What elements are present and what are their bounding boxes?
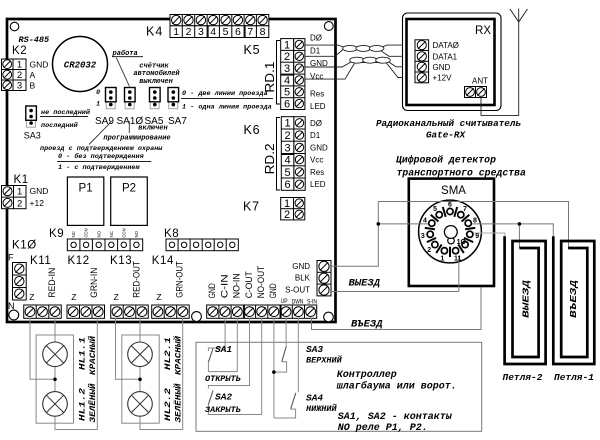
svg-text:K1Ø: K1Ø xyxy=(12,240,37,252)
svg-text:ЗЕЛЁНЫЙ: ЗЕЛЁНЫЙ xyxy=(174,383,184,423)
svg-text:A: A xyxy=(30,70,36,80)
svg-text:Z: Z xyxy=(114,292,119,302)
svg-text:GRN-IN: GRN-IN xyxy=(89,268,99,298)
svg-text:ЗАКРЫТЬ: ЗАКРЫТЬ xyxy=(204,405,241,415)
svg-text:K12: K12 xyxy=(68,255,90,267)
svg-text:GND: GND xyxy=(268,283,278,298)
svg-text:K14: K14 xyxy=(152,255,174,267)
svg-text:1: 1 xyxy=(284,198,290,210)
svg-text:Петля-2: Петля-2 xyxy=(503,372,543,383)
svg-text:проезд с подтверждением охраны: проезд с подтверждением охраны xyxy=(40,145,163,153)
svg-text:не последний: не последний xyxy=(41,108,90,117)
svg-text:K4: K4 xyxy=(146,25,163,39)
svg-text:CR2032: CR2032 xyxy=(64,60,97,70)
svg-text:2: 2 xyxy=(284,51,290,63)
svg-text:КРАСНЫЙ: КРАСНЫЙ xyxy=(174,336,184,375)
svg-text:NO-OUT: NO-OUT xyxy=(256,265,266,298)
svg-text:DWN: DWN xyxy=(292,299,304,306)
svg-text:P1: P1 xyxy=(79,183,93,195)
svg-text:RD.2: RD.2 xyxy=(263,143,277,174)
svg-text:ВЫЕЗД: ВЫЕЗД xyxy=(349,277,381,289)
svg-text:Gate-RX: Gate-RX xyxy=(426,130,466,141)
svg-text:Z: Z xyxy=(29,292,34,302)
svg-text:6: 6 xyxy=(284,99,290,111)
svg-text:1: 1 xyxy=(284,118,290,130)
svg-text:D1: D1 xyxy=(310,47,321,56)
svg-text:HL1.1: HL1.1 xyxy=(79,337,88,370)
svg-text:Z: Z xyxy=(156,292,161,302)
svg-text:F: F xyxy=(8,253,14,263)
svg-text:2: 2 xyxy=(284,130,290,142)
svg-text:9: 9 xyxy=(475,233,479,240)
svg-text:SA9: SA9 xyxy=(95,116,114,127)
svg-text:S-OUT: S-OUT xyxy=(285,285,310,294)
svg-text:выключен: выключен xyxy=(139,78,173,86)
svg-text:Контроллер: Контроллер xyxy=(337,370,397,381)
svg-text:NO: NO xyxy=(96,231,102,238)
svg-text:GND: GND xyxy=(433,63,451,72)
svg-text:SA4: SA4 xyxy=(306,393,323,404)
svg-text:4: 4 xyxy=(423,218,427,225)
svg-text:RD.1: RD.1 xyxy=(263,62,277,93)
svg-text:1: 1 xyxy=(284,39,290,51)
svg-text:GND: GND xyxy=(310,143,328,152)
svg-text:HL2.2: HL2.2 xyxy=(164,388,173,421)
svg-text:6: 6 xyxy=(448,202,452,209)
svg-text:K11: K11 xyxy=(30,255,51,267)
svg-text:K6: K6 xyxy=(244,123,261,137)
svg-text:1: 1 xyxy=(17,187,22,198)
svg-text:K8: K8 xyxy=(164,228,179,240)
svg-text:КРАСНЫЙ: КРАСНЫЙ xyxy=(88,336,98,375)
svg-text:ANT: ANT xyxy=(472,77,488,86)
svg-text:GND: GND xyxy=(30,60,49,70)
svg-text:SA3: SA3 xyxy=(24,131,41,141)
svg-text:NO: NO xyxy=(134,231,140,238)
svg-text:0 - без подтверждения: 0 - без подтверждения xyxy=(58,152,144,161)
svg-text:НИЖНИЙ: НИЖНИЙ xyxy=(306,403,338,414)
svg-text:2: 2 xyxy=(427,247,431,254)
svg-text:HL2.1: HL2.1 xyxy=(164,337,173,370)
svg-text:K7: K7 xyxy=(243,200,260,214)
svg-text:транспортного средства: транспортного средства xyxy=(397,168,526,179)
svg-text:+12: +12 xyxy=(30,198,45,208)
svg-text:Vcc: Vcc xyxy=(310,156,323,165)
svg-text:UP: UP xyxy=(281,298,288,305)
svg-text:K2: K2 xyxy=(12,45,27,57)
svg-text:Res: Res xyxy=(310,168,324,177)
svg-text:3: 3 xyxy=(421,233,425,240)
svg-text:NO реле P1, P2.: NO реле P1, P2. xyxy=(338,423,428,434)
svg-text:Цифровой детектор: Цифровой детектор xyxy=(396,155,496,166)
svg-text:LED: LED xyxy=(310,102,326,111)
svg-text:LED: LED xyxy=(310,180,326,189)
svg-text:Петля-1: Петля-1 xyxy=(554,372,594,383)
svg-text:SA2: SA2 xyxy=(215,392,232,403)
svg-text:1: 1 xyxy=(173,26,179,38)
svg-text:5: 5 xyxy=(284,167,290,179)
svg-text:0: 0 xyxy=(96,89,100,96)
svg-text:SA1: SA1 xyxy=(215,344,232,355)
svg-text:последний: последний xyxy=(41,121,78,130)
svg-text:2: 2 xyxy=(284,209,290,221)
svg-text:1Ø: 1Ø xyxy=(457,239,467,246)
svg-text:HL1.2: HL1.2 xyxy=(79,388,88,421)
svg-text:3: 3 xyxy=(284,63,290,75)
svg-text:3: 3 xyxy=(198,26,204,38)
svg-text:GND: GND xyxy=(292,262,310,271)
svg-text:0 - две линии проезда: 0 - две линии проезда xyxy=(182,90,268,98)
svg-text:включен: включен xyxy=(138,125,168,133)
svg-text:Z: Z xyxy=(71,292,76,302)
svg-text:7: 7 xyxy=(463,206,467,213)
svg-text:C-IN: C-IN xyxy=(219,274,229,298)
svg-text:2: 2 xyxy=(17,198,22,209)
svg-text:S-IN: S-IN xyxy=(307,299,317,306)
svg-text:1 - с подтверждением: 1 - с подтверждением xyxy=(58,164,140,172)
svg-text:NC: NC xyxy=(71,231,77,238)
svg-text:K9: K9 xyxy=(49,228,64,240)
svg-text:B: B xyxy=(30,81,36,91)
svg-text:DATAØ: DATAØ xyxy=(433,41,459,50)
svg-text:4: 4 xyxy=(284,75,290,87)
svg-text:6: 6 xyxy=(235,26,241,38)
svg-text:1: 1 xyxy=(440,256,444,263)
svg-text:NC: NC xyxy=(109,231,115,238)
svg-text:GRN-OUT: GRN-OUT xyxy=(175,261,185,298)
svg-text:SA7: SA7 xyxy=(168,116,187,127)
svg-text:BLK: BLK xyxy=(295,274,311,283)
svg-text:COM: COM xyxy=(84,228,90,238)
svg-text:5: 5 xyxy=(433,206,437,213)
svg-text:ВЪЕЗД: ВЪЕЗД xyxy=(351,318,383,330)
svg-text:Vcc: Vcc xyxy=(310,72,323,81)
svg-text:ВЕРХНИЙ: ВЕРХНИЙ xyxy=(306,354,343,365)
svg-text:DØ: DØ xyxy=(310,34,322,43)
svg-text:ВЪЕЗД: ВЪЕЗД xyxy=(569,279,579,318)
svg-text:K5: K5 xyxy=(244,43,261,57)
svg-text:RX: RX xyxy=(475,25,491,37)
svg-text:8: 8 xyxy=(260,26,266,38)
svg-text:4: 4 xyxy=(210,26,216,38)
svg-text:1: 1 xyxy=(96,101,100,108)
svg-text:GND: GND xyxy=(207,283,217,298)
svg-text:автомобилей: автомобилей xyxy=(133,69,180,78)
svg-text:11: 11 xyxy=(454,256,462,263)
svg-text:8: 8 xyxy=(473,218,477,225)
svg-text:RED-OUT: RED-OUT xyxy=(132,261,142,298)
svg-text:GND: GND xyxy=(30,186,49,196)
svg-text:ЗЕЛЁНЫЙ: ЗЕЛЁНЫЙ xyxy=(88,383,98,423)
svg-text:1 - одна линия проезда: 1 - одна линия проезда xyxy=(182,104,272,112)
svg-text:Res: Res xyxy=(310,90,324,99)
svg-text:4: 4 xyxy=(284,155,290,167)
svg-text:N: N xyxy=(8,301,15,311)
svg-text:K13: K13 xyxy=(110,255,132,267)
svg-text:RS-485: RS-485 xyxy=(19,35,50,45)
svg-text:6: 6 xyxy=(284,179,290,191)
svg-text:ВЫЕЗД: ВЫЕЗД xyxy=(522,279,532,318)
svg-text:DØ: DØ xyxy=(310,119,322,128)
svg-text:RED-IN: RED-IN xyxy=(47,268,57,298)
svg-text:ОТКРЫТЬ: ОТКРЫТЬ xyxy=(205,374,241,384)
svg-text:P2: P2 xyxy=(122,183,136,195)
svg-text:DATA1: DATA1 xyxy=(433,52,458,61)
svg-text:SA1, SA2 - контакты: SA1, SA2 - контакты xyxy=(338,412,453,423)
svg-text:NO-IN: NO-IN xyxy=(232,273,242,298)
svg-text:2: 2 xyxy=(186,26,192,38)
svg-text:SMA: SMA xyxy=(441,185,466,197)
svg-text:5: 5 xyxy=(223,26,229,38)
svg-text:программирование: программирование xyxy=(103,135,170,143)
svg-text:SA3: SA3 xyxy=(306,344,323,355)
svg-text:7: 7 xyxy=(247,26,253,38)
svg-text:3: 3 xyxy=(17,81,22,92)
svg-text:Радиоканальный считыватель: Радиоканальный считыватель xyxy=(376,118,521,129)
svg-text:D1: D1 xyxy=(310,131,321,140)
svg-text:5: 5 xyxy=(284,87,290,99)
svg-text:шлагбаума или ворот.: шлагбаума или ворот. xyxy=(336,379,457,392)
svg-text:COM: COM xyxy=(121,228,127,238)
svg-text:+12V: +12V xyxy=(433,74,453,83)
svg-text:C-OUT: C-OUT xyxy=(244,271,254,299)
svg-text:K1: K1 xyxy=(14,174,29,186)
svg-text:3: 3 xyxy=(284,142,290,154)
